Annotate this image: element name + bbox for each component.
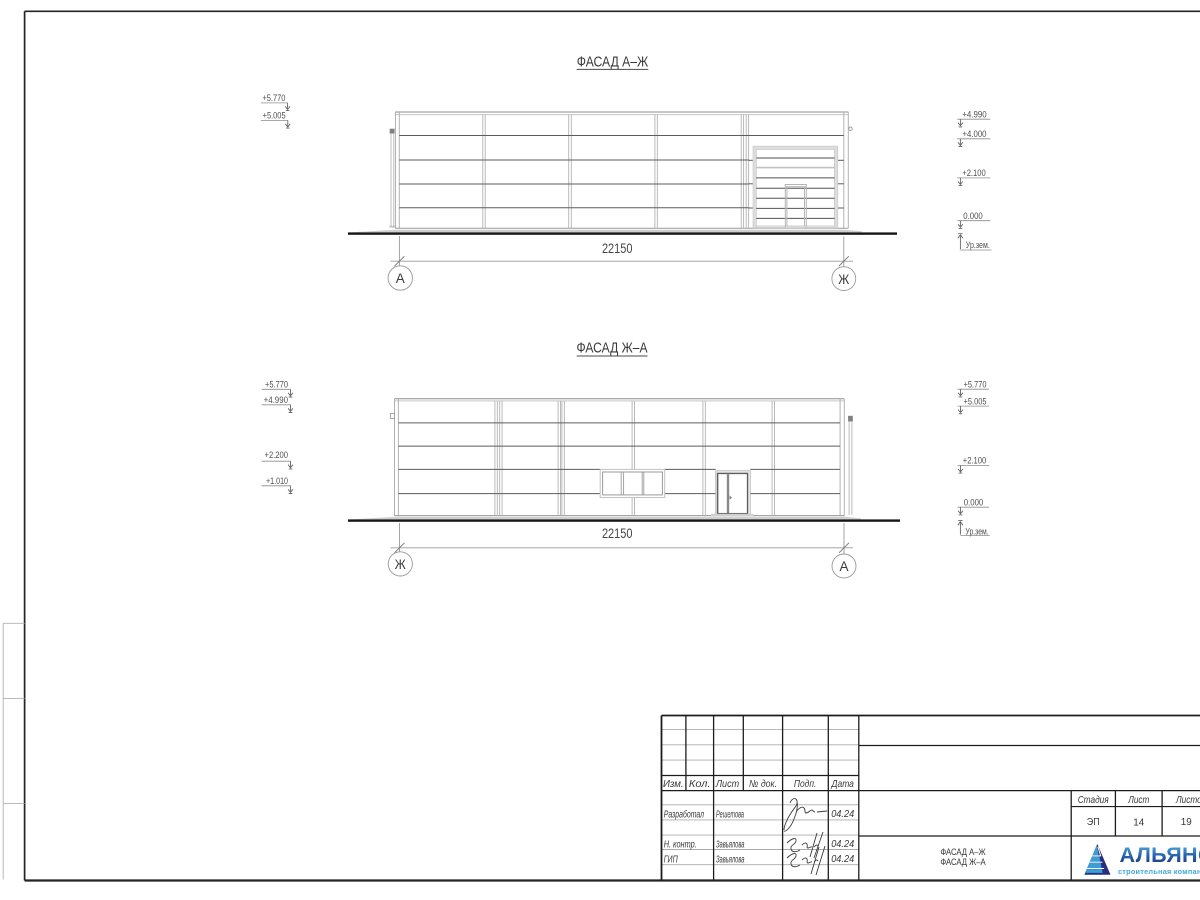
svg-text:Лист: Лист [715, 779, 740, 790]
svg-text:строительная компания: строительная компания [1118, 867, 1200, 876]
svg-text:04.24: 04.24 [831, 839, 855, 850]
svg-text:+1.010: +1.010 [266, 476, 288, 486]
svg-text:Решетова: Решетова [716, 809, 744, 820]
svg-text:22150: 22150 [602, 525, 633, 541]
svg-text:14: 14 [1133, 818, 1144, 829]
svg-text:Изм.: Изм. [663, 779, 684, 790]
svg-text:Листов: Листов [1175, 795, 1200, 806]
svg-text:+5.005: +5.005 [964, 396, 987, 406]
svg-text:0.000: 0.000 [963, 211, 983, 221]
svg-text:Ур.зем.: Ур.зем. [966, 240, 990, 250]
svg-text:ГИП: ГИП [664, 854, 679, 865]
svg-text:Н. контр.: Н. контр. [664, 839, 697, 850]
svg-text:22150: 22150 [602, 240, 633, 256]
svg-text:А: А [396, 270, 406, 286]
svg-text:Ж: Ж [838, 271, 849, 287]
svg-text:Завьялова: Завьялова [716, 839, 745, 850]
svg-text:Дата: Дата [831, 779, 854, 790]
svg-text:АЛЬЯНС: АЛЬЯНС [1120, 843, 1200, 867]
svg-text:Ж: Ж [395, 556, 406, 572]
svg-text:19: 19 [1181, 817, 1192, 828]
svg-text:+5.770: +5.770 [265, 380, 288, 390]
svg-text:+2.100: +2.100 [962, 168, 986, 178]
svg-text:0.000: 0.000 [964, 498, 984, 508]
svg-text:+5.005: +5.005 [263, 111, 286, 121]
svg-text:+5.770: +5.770 [964, 380, 987, 390]
svg-text:Лист: Лист [1127, 795, 1149, 806]
svg-text:Подп.: Подп. [794, 779, 816, 790]
svg-text:ФАСАД А–Ж: ФАСАД А–Ж [577, 55, 649, 71]
svg-text:ЭП: ЭП [1087, 817, 1100, 828]
svg-text:04.24: 04.24 [831, 854, 855, 865]
svg-text:+5.770: +5.770 [262, 93, 285, 103]
svg-text:+4.000: +4.000 [963, 129, 987, 139]
svg-text:№ док.: № док. [749, 779, 777, 790]
svg-text:ФАСАД Ж–А: ФАСАД Ж–А [940, 856, 986, 867]
svg-text:04.24: 04.24 [831, 809, 855, 820]
svg-text:Стадия: Стадия [1078, 795, 1110, 806]
svg-text:+2.200: +2.200 [265, 450, 289, 460]
svg-text:ФАСАД Ж–А: ФАСАД Ж–А [577, 340, 648, 356]
svg-text:+4.990: +4.990 [962, 110, 986, 120]
svg-text:+2.100: +2.100 [963, 456, 987, 466]
svg-text:Кол.: Кол. [689, 779, 711, 790]
svg-text:+4.990: +4.990 [264, 395, 288, 405]
svg-text:Ур.зем.: Ур.зем. [965, 526, 988, 536]
svg-text:Разработал: Разработал [664, 808, 705, 820]
svg-text:Завьялова: Завьялова [716, 854, 745, 865]
svg-text:А: А [840, 558, 850, 574]
